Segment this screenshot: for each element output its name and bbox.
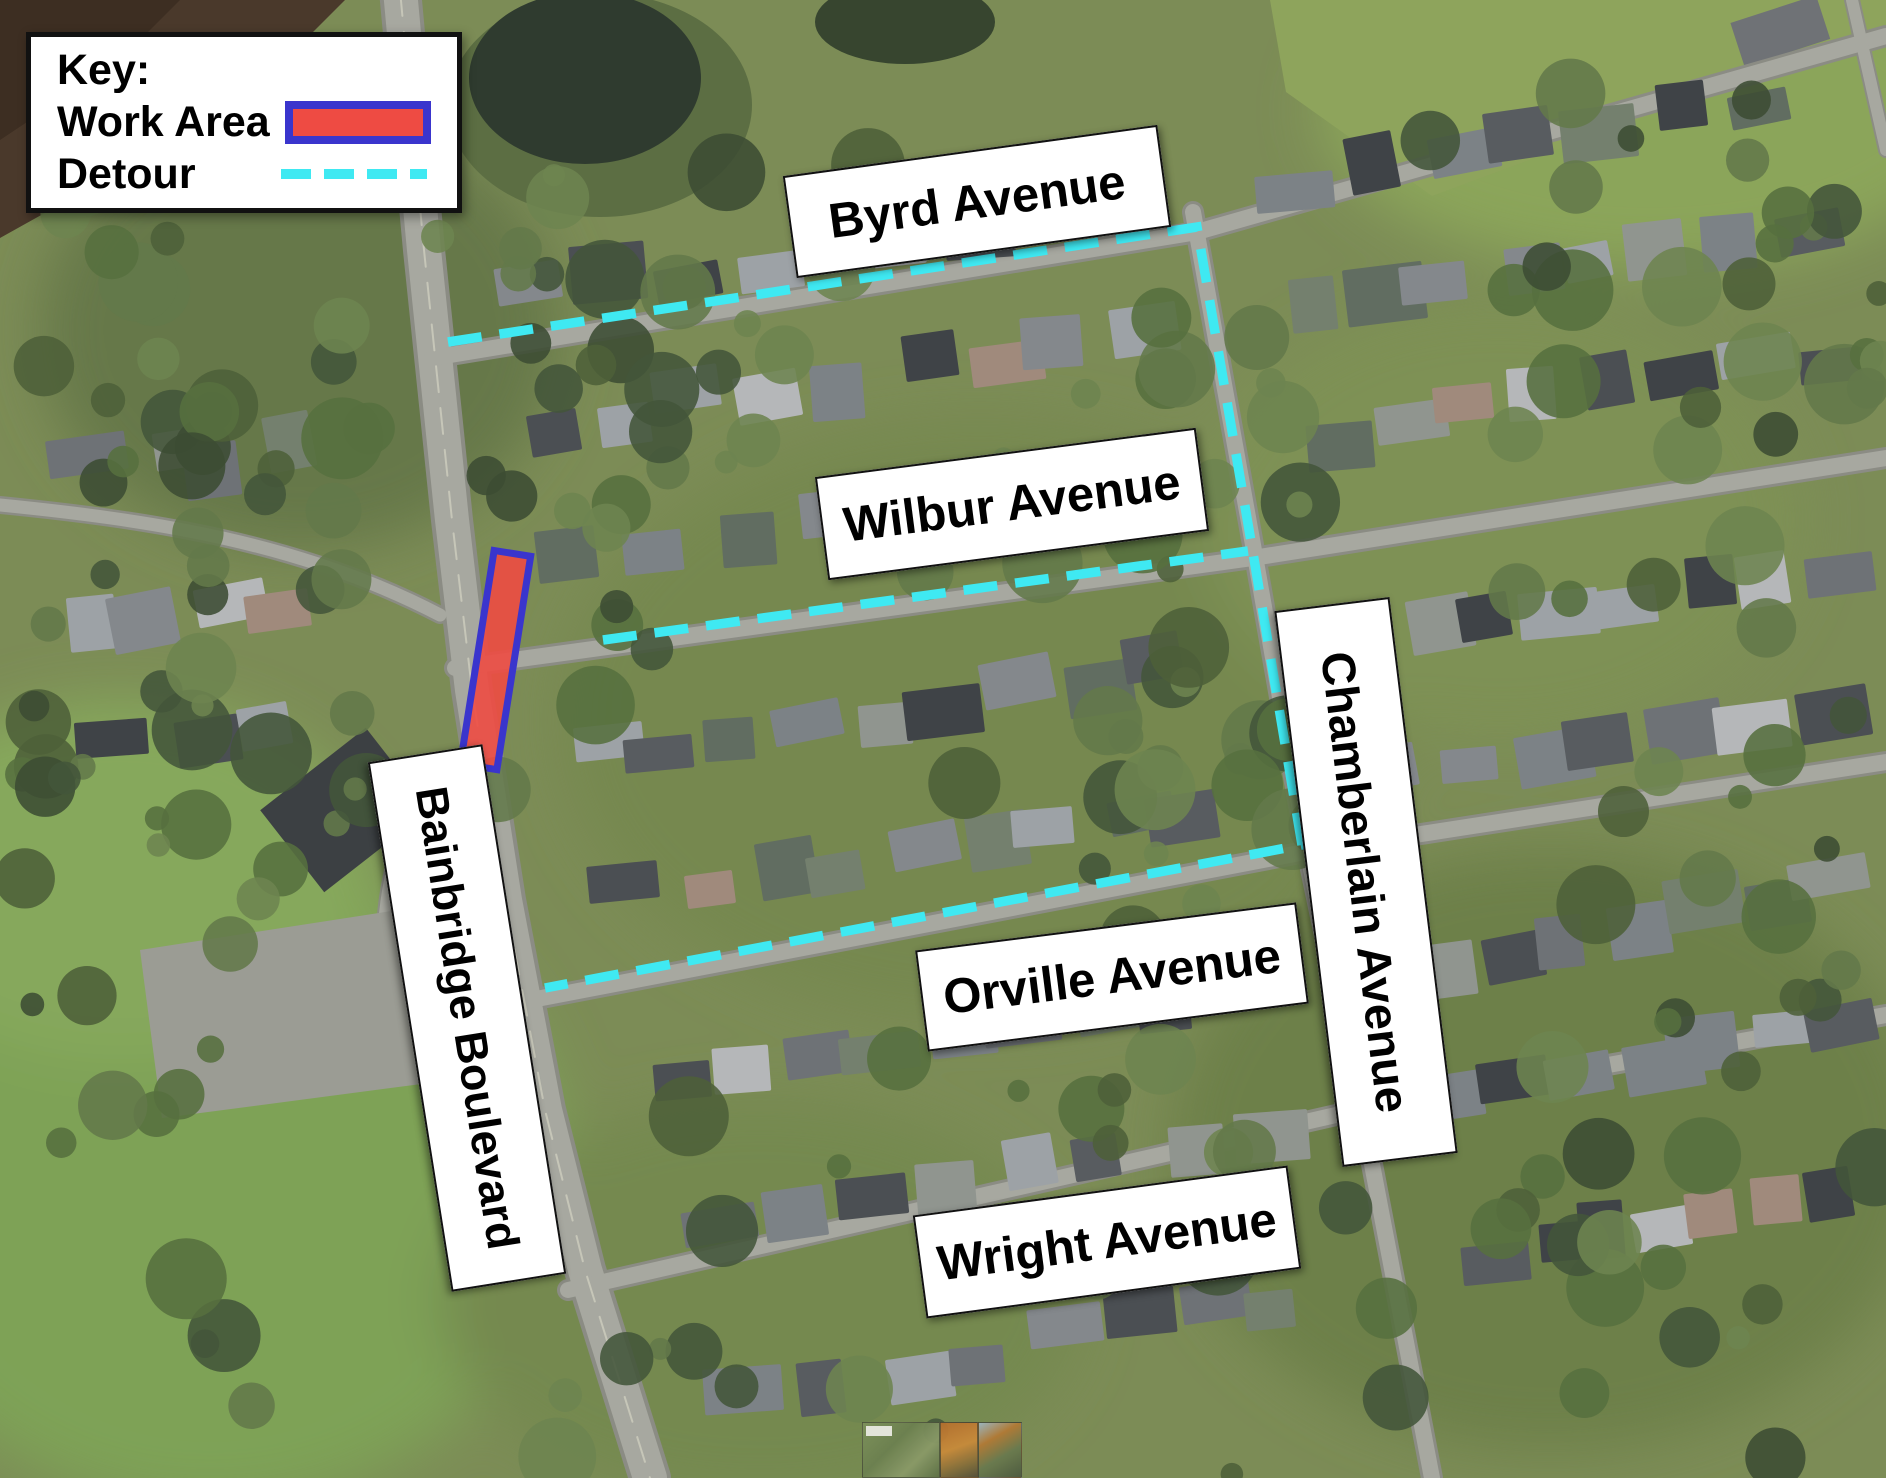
detour-map: Byrd Avenue Wilbur Avenue Orville Avenue… — [0, 0, 1886, 1478]
legend-work-area-label: Work Area — [57, 98, 270, 147]
work-area-swatch — [285, 101, 431, 144]
legend-work-area-row: Work Area — [31, 97, 457, 149]
photo-thumbnails — [862, 1422, 1022, 1478]
legend-title: Key: — [57, 46, 150, 95]
detour-swatch — [281, 169, 427, 179]
map-legend: Key: Work Area Detour — [26, 32, 462, 213]
legend-title-row: Key: — [31, 45, 457, 97]
legend-detour-row: Detour — [31, 148, 457, 200]
thumbnail-photo-1 — [940, 1422, 978, 1478]
thumbnail-photo-2 — [978, 1422, 1022, 1478]
legend-detour-label: Detour — [57, 150, 196, 199]
thumbnail-map-image — [862, 1422, 940, 1478]
